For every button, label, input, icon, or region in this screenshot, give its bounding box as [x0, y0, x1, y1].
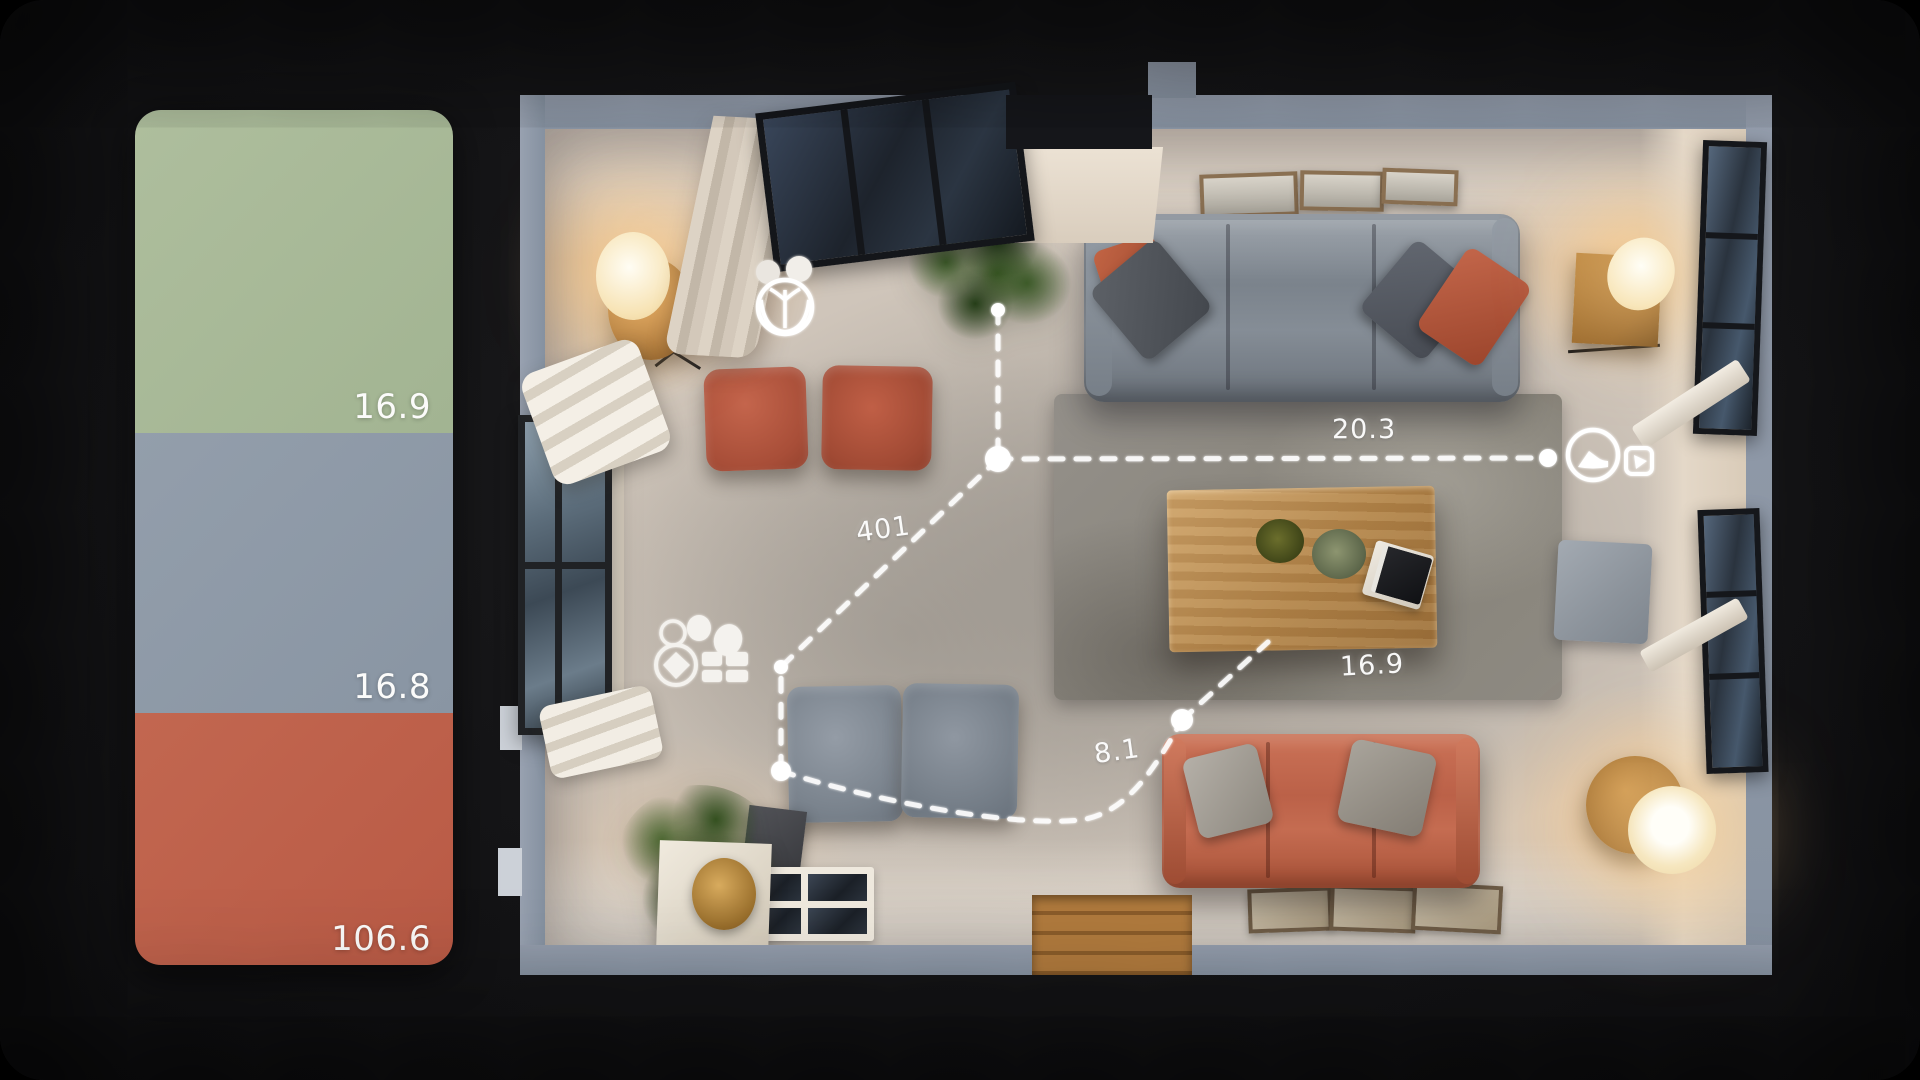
wall-picture-frame	[1381, 168, 1458, 207]
measurement-label-top: 20.3	[1332, 414, 1396, 445]
swatch-value-green: 16.9	[353, 387, 431, 427]
floorplan	[520, 95, 1772, 975]
palette-swatch-green[interactable]: 16.9	[135, 110, 453, 433]
scene-background: 16.9 16.8 106.6	[0, 0, 1920, 1080]
window-right-lower	[1697, 508, 1768, 774]
wall-notch-left	[498, 848, 522, 896]
swatch-value-red: 106.6	[331, 919, 431, 959]
throw-pillow-gray	[1336, 738, 1438, 838]
floor-picture-frame	[1411, 882, 1503, 935]
swatch-value-gray: 16.8	[353, 667, 431, 707]
floor-lamp-bottom-right	[1628, 786, 1716, 874]
measurement-label-bottom: 8.1	[1092, 733, 1142, 770]
stairs-bottom-opening	[1032, 895, 1192, 975]
wall-stub-top	[1148, 62, 1196, 98]
palette-swatch-red[interactable]: 106.6	[135, 713, 453, 965]
red-floor-cushion	[821, 365, 933, 471]
sofa-armrest	[1456, 738, 1478, 884]
palette-swatch-gray[interactable]: 16.8	[135, 433, 453, 713]
gold-decor-disc	[692, 858, 756, 930]
window-top	[755, 82, 1035, 273]
table-plant-small	[1312, 529, 1366, 579]
doorway-opening-top	[1006, 95, 1152, 149]
gray-floor-cushion	[901, 683, 1019, 819]
red-floor-cushion	[703, 366, 808, 471]
wall-picture-frame	[1199, 171, 1298, 218]
screenshot-stage: 16.9 16.8 106.6	[0, 0, 1920, 1080]
color-palette-panel: 16.9 16.8 106.6	[135, 110, 453, 965]
sofa-armrest	[1164, 738, 1186, 884]
gray-floor-cushion	[787, 685, 903, 823]
floor-lamp-top-left	[596, 232, 670, 320]
terracotta-sofa	[1162, 734, 1480, 888]
cushion-divider	[1226, 224, 1230, 390]
wall-picture-frame	[1300, 170, 1385, 211]
floor-picture-frame	[1329, 885, 1417, 934]
measurement-label-rug: 16.9	[1339, 648, 1405, 682]
throw-pillow-gray	[1181, 742, 1275, 840]
floor-picture-frame	[1247, 887, 1332, 934]
gray-floor-mat	[1553, 540, 1652, 645]
table-plant-small	[1256, 519, 1304, 563]
